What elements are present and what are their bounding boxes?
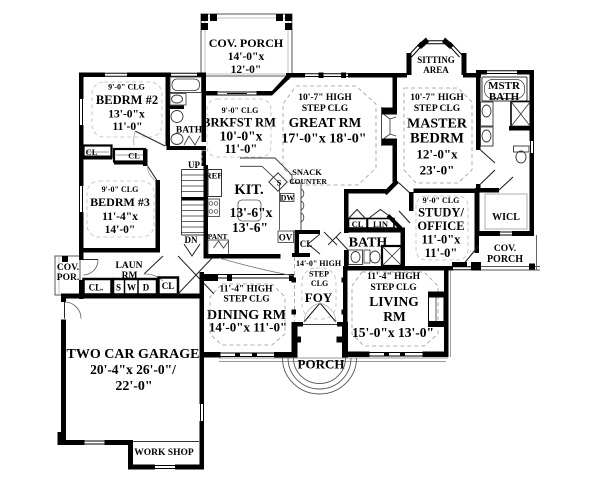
svg-text:LAUN: LAUN: [116, 261, 143, 271]
svg-text:10'-7" HIGH: 10'-7" HIGH: [410, 93, 464, 103]
svg-text:LIN: LIN: [373, 219, 389, 229]
svg-text:PORCH: PORCH: [487, 254, 523, 265]
svg-text:CL: CL: [162, 281, 175, 291]
svg-text:12'-0": 12'-0": [231, 64, 262, 76]
svg-text:11'-4" HIGH: 11'-4" HIGH: [219, 285, 273, 295]
svg-text:TWO CAR GARAGE: TWO CAR GARAGE: [66, 347, 199, 362]
svg-text:LIVING: LIVING: [369, 294, 419, 309]
svg-text:STEP CLG: STEP CLG: [370, 283, 417, 293]
svg-text:AREA: AREA: [423, 65, 449, 75]
svg-text:STUDY/: STUDY/: [418, 206, 464, 220]
svg-text:DW: DW: [281, 194, 295, 203]
svg-text:14'-0"x 11'-0": 14'-0"x 11'-0": [209, 320, 287, 335]
svg-text:13'-6": 13'-6": [232, 220, 268, 235]
svg-text:WORK SHOP: WORK SHOP: [134, 448, 194, 458]
svg-text:SITTING: SITTING: [417, 55, 455, 65]
svg-text:OV: OV: [279, 233, 293, 243]
svg-text:DN: DN: [185, 235, 198, 245]
svg-text:14'-0" HIGH: 14'-0" HIGH: [296, 259, 342, 268]
svg-text:14'-0": 14'-0": [105, 224, 136, 236]
svg-text:MASTER: MASTER: [407, 117, 468, 132]
svg-text:STEP CLG: STEP CLG: [414, 104, 461, 114]
svg-text:COV. PORCH: COV. PORCH: [209, 36, 284, 50]
svg-text:20'-4"x 26'-0"/: 20'-4"x 26'-0"/: [90, 362, 176, 377]
svg-text:PORCH: PORCH: [298, 357, 345, 372]
svg-text:14'-0"x: 14'-0"x: [228, 51, 265, 63]
svg-text:S: S: [116, 283, 121, 293]
svg-text:STEP: STEP: [309, 270, 329, 279]
svg-text:RM: RM: [383, 309, 406, 324]
svg-text:CL: CL: [300, 239, 313, 249]
svg-text:9'-0" CLG: 9'-0" CLG: [222, 106, 259, 115]
svg-text:9'-0" CLG: 9'-0" CLG: [108, 83, 145, 92]
svg-text:11'-0": 11'-0": [225, 142, 258, 156]
svg-text:9'-0" CLG: 9'-0" CLG: [102, 185, 139, 194]
svg-text:CL: CL: [352, 219, 364, 229]
svg-text:W: W: [127, 283, 136, 293]
svg-text:10'-7" HIGH: 10'-7" HIGH: [298, 93, 352, 103]
svg-text:BEDRM #2: BEDRM #2: [96, 93, 158, 107]
svg-text:COV.: COV.: [494, 244, 516, 254]
svg-text:CL.: CL.: [89, 283, 104, 293]
svg-text:CLG: CLG: [311, 279, 328, 288]
svg-text:9'-0" CLG: 9'-0" CLG: [423, 196, 460, 205]
svg-text:S: S: [277, 178, 282, 188]
svg-text:BEDRM: BEDRM: [410, 131, 464, 147]
svg-text:REF: REF: [206, 171, 223, 181]
svg-text:17'-0"x 18'-0": 17'-0"x 18'-0": [281, 132, 366, 147]
svg-text:15'-0"x 13'-0": 15'-0"x 13'-0": [352, 325, 434, 340]
svg-text:FOY: FOY: [305, 290, 333, 305]
svg-text:STEP CLG: STEP CLG: [223, 295, 270, 305]
svg-text:23'-0": 23'-0": [420, 163, 455, 178]
svg-text:KIT.: KIT.: [234, 182, 263, 198]
svg-text:OFFICE: OFFICE: [417, 219, 464, 233]
svg-text:22'-0": 22'-0": [115, 379, 152, 394]
svg-text:WICL: WICL: [492, 212, 520, 223]
svg-text:BEDRM #3: BEDRM #3: [90, 195, 150, 209]
svg-text:11'-0": 11'-0": [112, 121, 142, 133]
svg-text:13'-6"x: 13'-6"x: [230, 205, 273, 220]
svg-text:13'-0"x: 13'-0"x: [108, 109, 145, 121]
svg-text:COV.: COV.: [57, 263, 79, 273]
svg-text:POR.: POR.: [57, 273, 79, 283]
svg-text:GREAT RM: GREAT RM: [289, 115, 362, 130]
svg-text:CL: CL: [128, 151, 140, 161]
svg-text:SNACK: SNACK: [292, 167, 322, 177]
svg-text:11'-0"x: 11'-0"x: [422, 233, 462, 247]
svg-text:11'-0": 11'-0": [425, 246, 458, 260]
svg-text:D: D: [143, 283, 150, 293]
svg-text:12'-0"x: 12'-0"x: [416, 147, 458, 162]
svg-text:UP: UP: [188, 160, 200, 170]
svg-text:BRKFST RM: BRKFST RM: [202, 116, 276, 130]
svg-text:11'-4"x: 11'-4"x: [102, 211, 138, 223]
svg-text:STEP CLG: STEP CLG: [302, 104, 349, 114]
svg-text:11'-4" HIGH: 11'-4" HIGH: [367, 272, 421, 282]
svg-text:CL: CL: [86, 147, 98, 157]
